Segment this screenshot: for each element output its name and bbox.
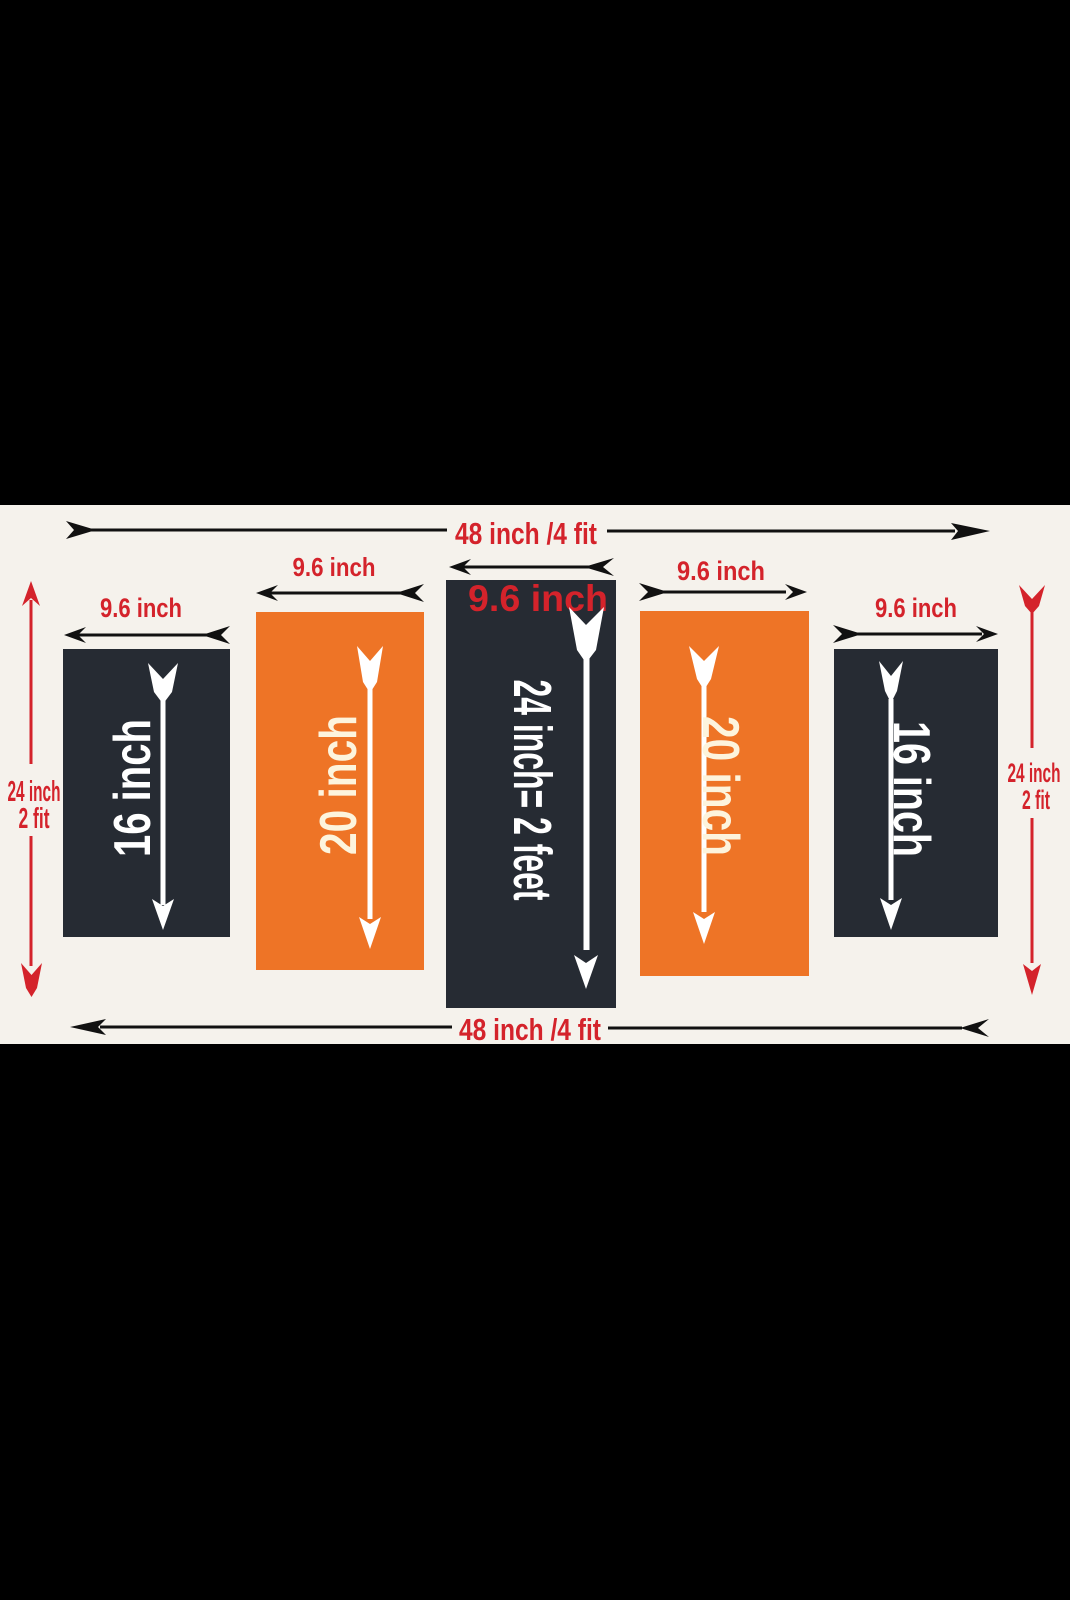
svg-text:9.6 inch: 9.6 inch bbox=[468, 578, 608, 619]
svg-text:2 fit: 2 fit bbox=[1022, 785, 1050, 815]
svg-text:48 inch /4 fit: 48 inch /4 fit bbox=[459, 1012, 601, 1047]
svg-text:9.6 inch: 9.6 inch bbox=[293, 552, 376, 582]
svg-text:16 inch: 16 inch bbox=[882, 721, 940, 857]
svg-text:24 inch= 2 feet: 24 inch= 2 feet bbox=[502, 680, 562, 901]
svg-text:9.6 inch: 9.6 inch bbox=[677, 556, 765, 586]
svg-text:48 inch /4 fit: 48 inch /4 fit bbox=[455, 516, 597, 551]
svg-text:20 inch: 20 inch bbox=[691, 716, 749, 856]
svg-text:9.6 inch: 9.6 inch bbox=[875, 593, 957, 623]
svg-text:16 inch: 16 inch bbox=[104, 719, 162, 857]
svg-text:9.6 inch: 9.6 inch bbox=[100, 593, 182, 623]
svg-text:2 fit: 2 fit bbox=[19, 803, 50, 835]
svg-text:24 inch: 24 inch bbox=[1008, 758, 1061, 788]
svg-text:20 inch: 20 inch bbox=[310, 715, 368, 855]
